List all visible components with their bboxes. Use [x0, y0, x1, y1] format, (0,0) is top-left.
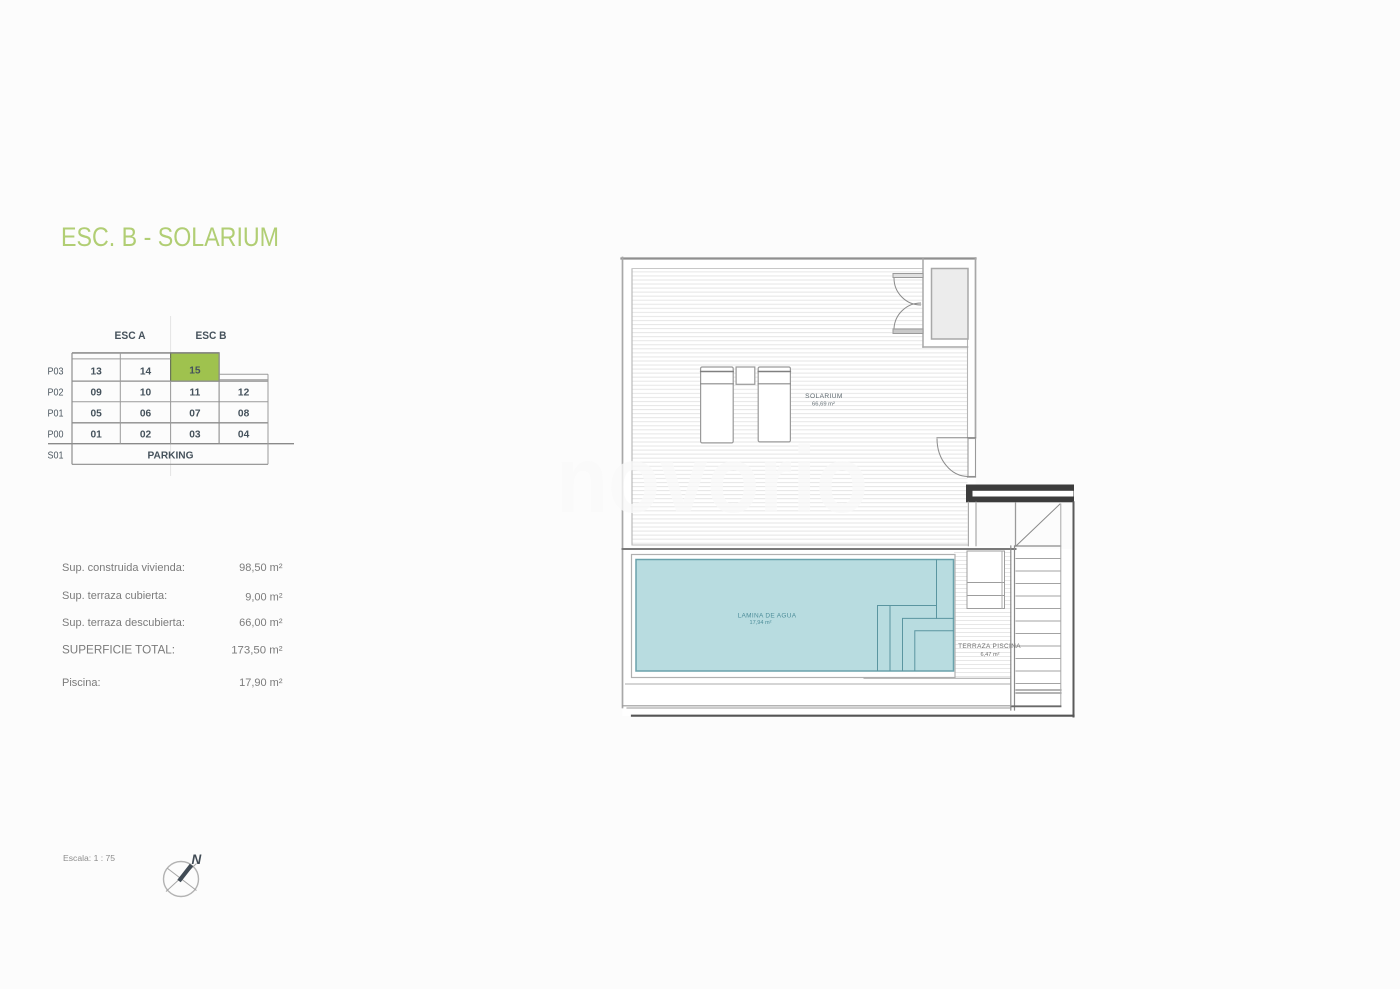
svg-text:07: 07 [189, 409, 201, 420]
svg-text:SUPERFICIE TOTAL:: SUPERFICIE TOTAL: [62, 643, 175, 657]
svg-text:ESC B: ESC B [196, 330, 227, 342]
svg-text:ESC A: ESC A [115, 330, 146, 342]
svg-text:12: 12 [238, 388, 250, 399]
svg-text:06: 06 [140, 409, 152, 420]
svg-text:SOLARIUM: SOLARIUM [805, 393, 843, 400]
svg-text:15: 15 [189, 366, 201, 377]
svg-text:98,50 m²: 98,50 m² [239, 562, 283, 574]
svg-text:novorio: novorio [556, 427, 868, 533]
svg-text:ESC. B - SOLARIUM: ESC. B - SOLARIUM [61, 222, 279, 252]
svg-text:6,47 m²: 6,47 m² [981, 652, 1000, 658]
svg-text:04: 04 [238, 430, 250, 441]
svg-text:Sup. terraza cubierta:: Sup. terraza cubierta: [62, 590, 167, 602]
svg-text:02: 02 [140, 430, 152, 441]
svg-text:P01: P01 [48, 409, 64, 420]
svg-text:173,50 m²: 173,50 m² [231, 645, 282, 657]
svg-text:17,90 m²: 17,90 m² [239, 677, 283, 689]
svg-text:9,00 m²: 9,00 m² [245, 592, 283, 604]
svg-text:P02: P02 [48, 388, 64, 399]
svg-text:66,69 m²: 66,69 m² [812, 402, 835, 408]
svg-text:TERRAZA PISCINA: TERRAZA PISCINA [958, 643, 1021, 650]
svg-text:10: 10 [140, 388, 152, 399]
svg-text:03: 03 [189, 430, 201, 441]
svg-text:N: N [192, 852, 202, 867]
svg-text:Escala: 1 : 75: Escala: 1 : 75 [63, 853, 115, 863]
svg-text:P00: P00 [48, 430, 64, 441]
svg-text:LAMINA DE AGUA: LAMINA DE AGUA [738, 613, 797, 620]
svg-text:13: 13 [91, 367, 103, 378]
svg-text:01: 01 [91, 430, 103, 441]
svg-text:11: 11 [190, 388, 201, 399]
svg-text:Sup. terraza descubierta:: Sup. terraza descubierta: [62, 617, 185, 629]
svg-text:Piscina:: Piscina: [62, 677, 101, 689]
svg-text:Sup. construida vivienda:: Sup. construida vivienda: [62, 562, 185, 574]
svg-text:P03: P03 [48, 367, 64, 378]
svg-text:S01: S01 [48, 450, 64, 461]
svg-text:17,94 m²: 17,94 m² [749, 620, 771, 626]
svg-text:05: 05 [91, 409, 103, 420]
svg-text:09: 09 [91, 388, 103, 399]
svg-text:08: 08 [238, 409, 250, 420]
svg-text:PARKING: PARKING [148, 450, 194, 461]
svg-text:66,00 m²: 66,00 m² [239, 617, 283, 629]
svg-text:14: 14 [140, 367, 152, 378]
